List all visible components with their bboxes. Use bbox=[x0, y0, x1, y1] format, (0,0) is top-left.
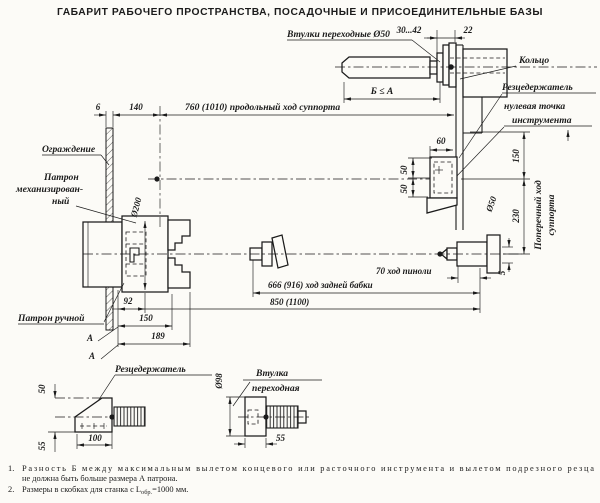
dim-50-upper-value: 50 bbox=[399, 165, 409, 175]
dim-140-value: 140 bbox=[129, 102, 143, 112]
drawing-title: ГАБАРИТ РАБОЧЕГО ПРОСТРАНСТВА, ПОСАДОЧНЫ… bbox=[57, 7, 543, 18]
detail-toolholder-label: Резцедержатель bbox=[115, 364, 186, 375]
longitudinal-travel-label: 760 (1010) продольный ход суппорта bbox=[185, 102, 340, 113]
note2-number: 2. bbox=[8, 485, 14, 494]
detail2-dia-value: Ø98 bbox=[214, 373, 224, 390]
detail1-dim-100: 100 bbox=[88, 433, 102, 443]
dead-center bbox=[250, 235, 288, 268]
svg-text:Патрон: Патрон bbox=[43, 172, 79, 183]
svg-text:Втулки переходные Ø50: Втулки переходные Ø50 bbox=[286, 29, 390, 40]
detail-sleeve: Втулка переходная Ø98 55 bbox=[214, 368, 322, 448]
cross-travel-label-2: суппорта bbox=[546, 194, 557, 235]
top-dimension-chain: 6 140 760 (1010) продольный ход суппорта bbox=[94, 102, 454, 127]
power-chuck-label: Патрон механизирован- ный bbox=[15, 172, 136, 223]
test-bar bbox=[342, 53, 443, 82]
tool-zero-point-label: нулевая точка инструмента bbox=[454, 101, 592, 179]
dim-189-value: 189 bbox=[151, 331, 165, 341]
tool-zero-travel-line bbox=[148, 176, 455, 182]
dim-5-value: 5 bbox=[497, 270, 507, 275]
svg-text:нулевая точка: нулевая точка bbox=[504, 101, 565, 112]
quill-dia-value: Ø50 bbox=[483, 195, 498, 214]
note2-text: Размеры в скобках для станка с Lобр.=100… bbox=[22, 485, 188, 496]
toolpost-height-dims: 50 50 bbox=[399, 158, 432, 197]
note1-number: 1. bbox=[8, 464, 14, 473]
svg-text:22: 22 bbox=[463, 25, 474, 35]
cross-travel-label-1: Поперечный ход bbox=[533, 180, 544, 251]
note1-line2: не должна быть больше размера А патрона. bbox=[22, 474, 178, 483]
headstock-flange bbox=[83, 222, 122, 287]
cross-travel-dims: 150 230 Ø50 Поперечный ход суппорта bbox=[461, 132, 557, 254]
guard-thickness-value: 6 bbox=[96, 102, 101, 112]
guard-label: Ограждение bbox=[42, 144, 109, 165]
section-a-marks: А А bbox=[86, 327, 118, 361]
notes: 1. Разность Б между максимальным вылетом… bbox=[8, 464, 594, 496]
note1-line1: Разность Б между максимальным вылетом ко… bbox=[22, 464, 594, 473]
dim-230-value: 230 bbox=[511, 209, 521, 224]
b-le-a-dim: Б ≤ А bbox=[344, 82, 440, 103]
tailstock-quill: 5 bbox=[437, 235, 513, 275]
detail-toolholder: Резцедержатель 50 55 100 bbox=[37, 364, 212, 452]
svg-text:Патрон ручной: Патрон ручной bbox=[17, 313, 85, 324]
svg-text:Резцедержатель: Резцедержатель bbox=[502, 82, 573, 93]
dim-150-right-value: 150 bbox=[511, 149, 521, 163]
svg-text:Ограждение: Ограждение bbox=[42, 144, 96, 155]
detail1-dim-50: 50 bbox=[37, 384, 47, 394]
detail2-dim-55: 55 bbox=[276, 433, 286, 443]
detail-sleeve-label-1: Втулка bbox=[255, 368, 288, 379]
dim-60-value: 60 bbox=[437, 136, 447, 146]
svg-text:инструмента: инструмента bbox=[512, 115, 572, 126]
dim-92-value: 92 bbox=[124, 296, 134, 306]
b-le-a-value: Б ≤ А bbox=[370, 86, 394, 97]
detail-sleeve-label-2: переходная bbox=[252, 383, 300, 394]
svg-text:механизирован-: механизирован- bbox=[15, 184, 83, 195]
dim-850-value: 850 (1100) bbox=[270, 297, 309, 307]
drawing-canvas: ГАБАРИТ РАБОЧЕГО ПРОСТРАНСТВА, ПОСАДОЧНЫ… bbox=[0, 0, 600, 503]
section-a1: А bbox=[86, 333, 93, 343]
dim-150-left-value: 150 bbox=[139, 313, 153, 323]
dim-50-lower-value: 50 bbox=[399, 184, 409, 194]
chuck-dimension-chain: 92 850 (1100) 150 189 bbox=[112, 290, 480, 347]
toolpost-block: 60 bbox=[427, 136, 457, 213]
svg-text:ный: ный bbox=[52, 196, 70, 207]
tailstock-travel-value: 666 (916) ход задней бабки bbox=[268, 280, 373, 290]
section-a2: А bbox=[88, 351, 95, 361]
technical-drawing-sheet: ГАБАРИТ РАБОЧЕГО ПРОСТРАНСТВА, ПОСАДОЧНЫ… bbox=[0, 0, 600, 503]
svg-text:Кольцо: Кольцо bbox=[518, 55, 549, 66]
detail1-dim-55: 55 bbox=[37, 441, 47, 451]
svg-text:30...42: 30...42 bbox=[396, 25, 422, 35]
quill-travel-value: 70 ход пиноли bbox=[376, 266, 432, 276]
spindle-housing bbox=[448, 49, 507, 133]
